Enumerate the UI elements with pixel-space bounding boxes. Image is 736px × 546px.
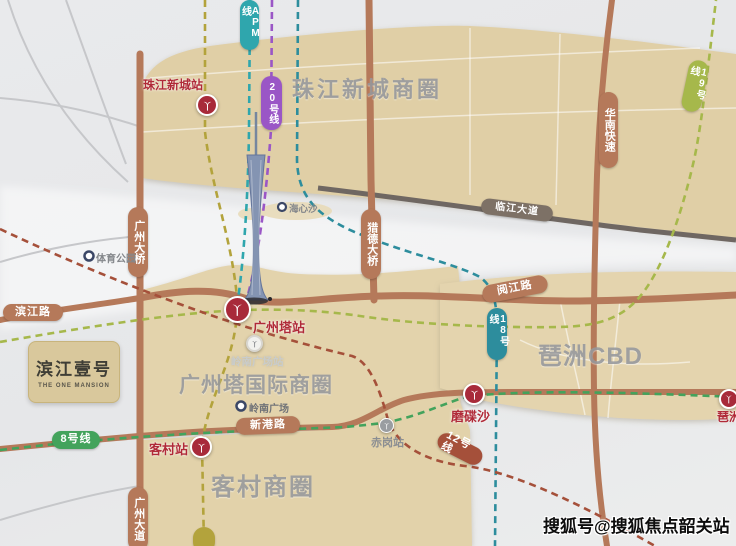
lingnan-square-icon [237, 402, 246, 411]
road-pill-guangzhou-avenue: 广州大道 [128, 487, 148, 546]
district-label-kecun: 客村商圈 [211, 467, 315, 502]
station-icon-pazhou [719, 389, 736, 409]
station-icon-lingnan [246, 335, 263, 352]
apm-line-pill: APM线 [240, 0, 259, 50]
station-label-guangzhouta: 广州塔站 [253, 317, 305, 336]
station-label-lingnan: 岭南广场站 [231, 354, 284, 369]
poi-label-sports-park: 体育公园 [96, 250, 136, 265]
station-label-pazhou: 琶洲 [717, 408, 736, 425]
district-zhujiang-area [142, 26, 736, 238]
station-icon-zhujiangxincheng [196, 94, 218, 116]
road-pill-binjiang-road: 滨江路 [3, 304, 63, 321]
station-icon-chigang [379, 418, 394, 433]
road-pill-huanan-expressway: 华南快速 [599, 92, 618, 168]
metro-logo-icon [723, 393, 735, 405]
metro-logo-icon [195, 441, 208, 454]
line18-pill: 18号线 [487, 308, 507, 360]
road-pill-xingang-road: 新港路 [236, 416, 301, 435]
metro-map: APM线 20号线 18号线 19号线 8号线 12号线 广州大桥 滨江路 广州… [0, 0, 736, 546]
road-pill-liede-bridge: 猎德大桥 [361, 209, 381, 279]
poi-label-lingnan-square: 岭南广场 [249, 400, 289, 415]
district-label-gta: 广州塔国际商圈 [179, 369, 333, 399]
district-label-pazhou: 琶洲CBD [538, 336, 643, 371]
district-label-zhujiang: 珠江新城商圈 [292, 72, 442, 104]
project-name-en: THE ONE MANSION [38, 383, 110, 389]
station-label-kecun: 客村站 [149, 439, 188, 458]
station-label-chigang: 赤岗站 [371, 434, 404, 450]
haixinsha-icon [278, 203, 286, 211]
project-badge: 滨江壹号 THE ONE MANSION [28, 341, 120, 403]
metro-logo-icon [201, 99, 214, 112]
line20-pill: 20号线 [261, 76, 282, 130]
metro-logo-icon [468, 388, 481, 401]
station-icon-guangzhouta [224, 296, 251, 323]
project-name: 滨江壹号 [36, 355, 112, 380]
poi-label-haixinsha: 海心沙 [289, 201, 318, 215]
station-icon-modiesha [463, 383, 485, 405]
station-icon-kecun [190, 436, 212, 458]
sports-park-icon [85, 252, 94, 261]
metro-logo-icon [229, 301, 246, 318]
line3-pill-partial [193, 527, 215, 546]
metro-logo-icon [250, 339, 259, 348]
station-label-modiesha: 磨碟沙 [451, 406, 490, 425]
station-label-zhujiangxincheng: 珠江新城站 [143, 76, 203, 93]
road-pill-guangzhou-bridge: 广州大桥 [128, 207, 148, 277]
watermark: 搜狐号@搜狐焦点韶关站 [543, 512, 730, 537]
metro-logo-icon [382, 421, 391, 430]
line8-pill: 8号线 [52, 431, 100, 449]
